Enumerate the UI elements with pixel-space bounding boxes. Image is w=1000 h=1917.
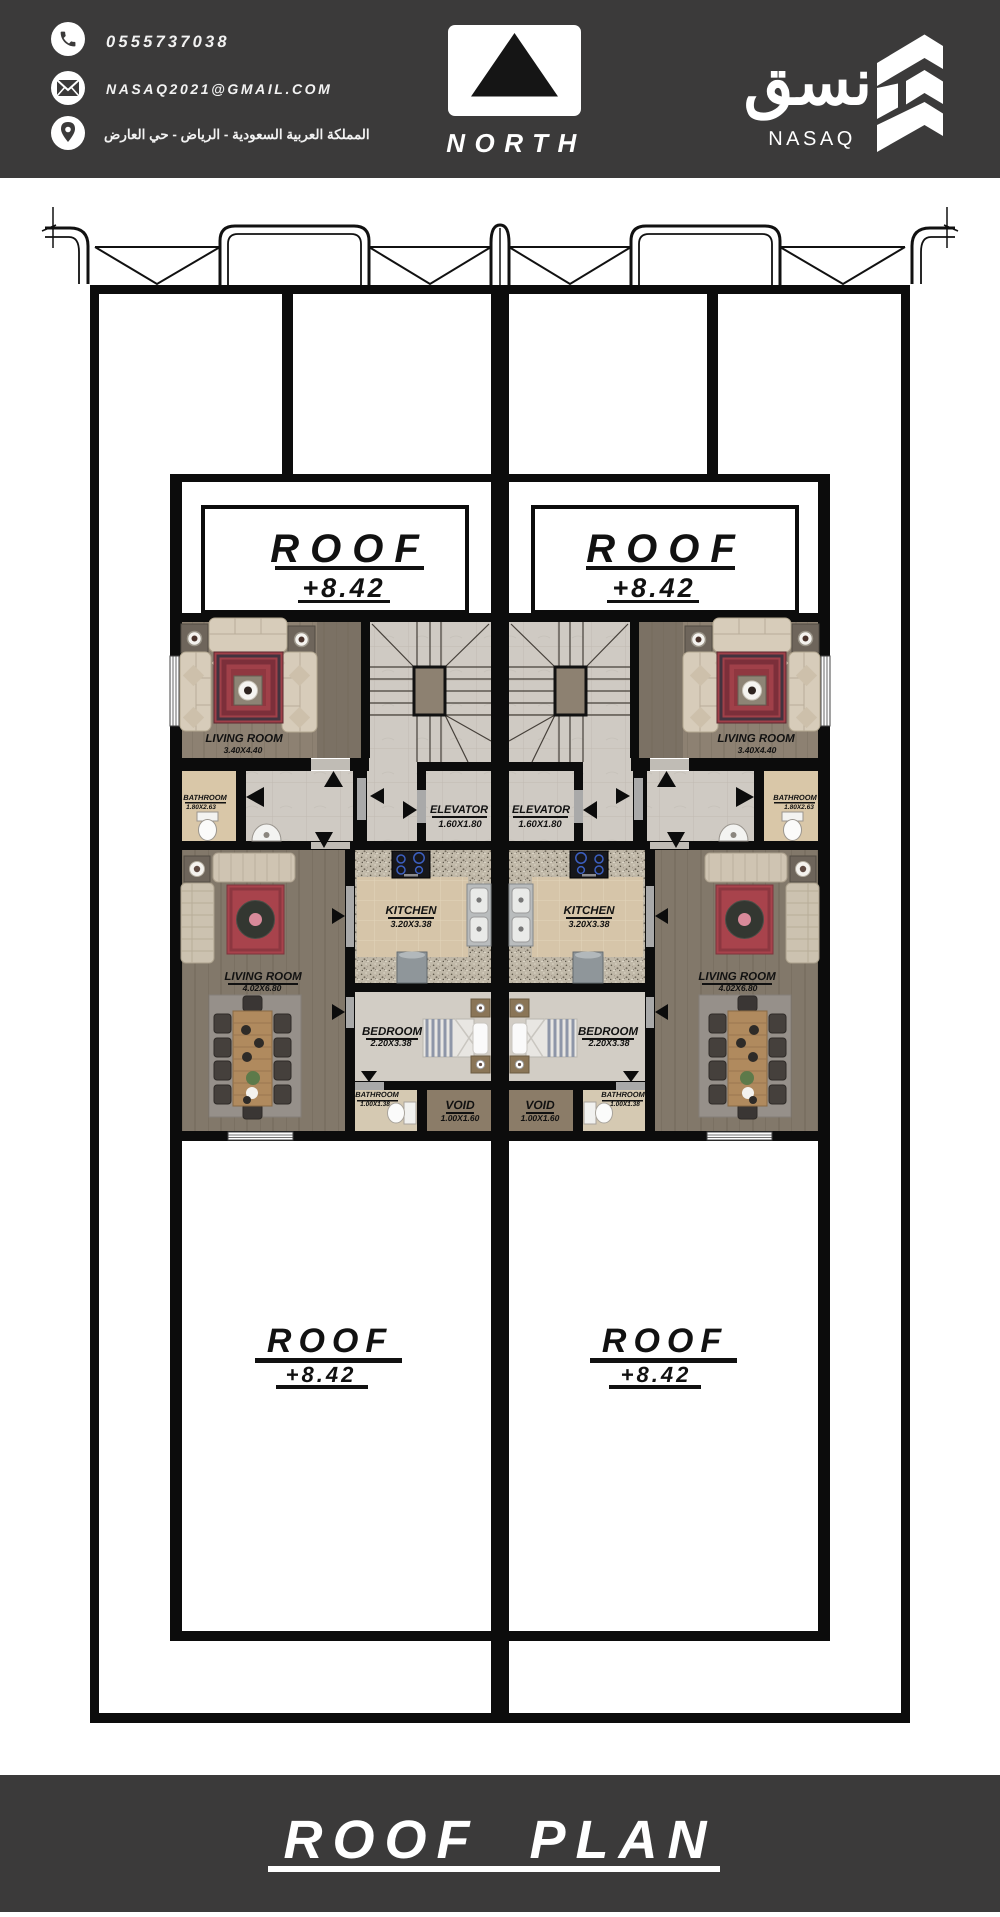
svg-text:نسق: نسق xyxy=(744,46,872,121)
svg-text:+8.42: +8.42 xyxy=(286,1362,357,1387)
svg-text:BATHROOM: BATHROOM xyxy=(355,1090,399,1099)
svg-text:LIVING ROOM: LIVING ROOM xyxy=(205,733,283,745)
svg-text:0555737038: 0555737038 xyxy=(106,33,230,51)
svg-text:KITCHEN: KITCHEN xyxy=(385,905,437,917)
svg-text:ELEVATOR: ELEVATOR xyxy=(512,804,570,816)
svg-text:1.00X1.38: 1.00X1.38 xyxy=(610,1101,640,1108)
svg-text:3.20X3.38: 3.20X3.38 xyxy=(390,919,431,929)
svg-text:1.80X2.63: 1.80X2.63 xyxy=(186,804,216,811)
svg-text:ROOF: ROOF xyxy=(602,1322,728,1360)
svg-text:NASAQ2021@GMAIL.COM: NASAQ2021@GMAIL.COM xyxy=(106,81,332,97)
svg-text:3.20X3.38: 3.20X3.38 xyxy=(568,919,609,929)
svg-text:NASAQ: NASAQ xyxy=(768,128,856,150)
svg-text:ELEVATOR: ELEVATOR xyxy=(430,804,488,816)
svg-text:BATHROOM: BATHROOM xyxy=(183,793,227,802)
svg-text:1.00X1.60: 1.00X1.60 xyxy=(521,1113,560,1123)
svg-text:BATHROOM: BATHROOM xyxy=(773,793,817,802)
svg-text:+8.42: +8.42 xyxy=(621,1362,692,1387)
svg-text:2.20X3.38: 2.20X3.38 xyxy=(587,1038,629,1048)
svg-text:KITCHEN: KITCHEN xyxy=(563,905,615,917)
svg-text:2.20X3.38: 2.20X3.38 xyxy=(369,1038,411,1048)
svg-text:ROOF: ROOF xyxy=(270,527,430,571)
svg-text:LIVING ROOM: LIVING ROOM xyxy=(717,733,795,745)
svg-text:BEDROOM: BEDROOM xyxy=(578,1026,638,1038)
svg-text:ROOF: ROOF xyxy=(586,527,746,571)
svg-text:4.02X6.80: 4.02X6.80 xyxy=(718,983,758,993)
svg-text:LIVING ROOM: LIVING ROOM xyxy=(224,971,302,983)
svg-text:VOID: VOID xyxy=(525,1098,555,1112)
svg-text:1.00X1.60: 1.00X1.60 xyxy=(441,1113,480,1123)
svg-text:المملكة العربية السعودية - الر: المملكة العربية السعودية - الرياض - حي ا… xyxy=(104,127,370,143)
svg-text:1.60X1.80: 1.60X1.80 xyxy=(518,819,562,830)
svg-text:LIVING ROOM: LIVING ROOM xyxy=(698,971,776,983)
svg-text:NORTH: NORTH xyxy=(446,128,585,158)
svg-text:BEDROOM: BEDROOM xyxy=(362,1026,422,1038)
svg-text:3.40X4.40: 3.40X4.40 xyxy=(224,745,263,755)
svg-text:VOID: VOID xyxy=(445,1098,475,1112)
svg-text:+8.42: +8.42 xyxy=(612,573,695,603)
svg-text:1.00X1.38: 1.00X1.38 xyxy=(360,1101,390,1108)
svg-text:3.40X4.40: 3.40X4.40 xyxy=(738,745,777,755)
svg-text:ROOF: ROOF xyxy=(267,1322,393,1360)
svg-text:1.80X2.63: 1.80X2.63 xyxy=(784,804,814,811)
svg-text:1.60X1.80: 1.60X1.80 xyxy=(438,819,482,830)
svg-text:ROOF PLAN: ROOF PLAN xyxy=(284,1810,717,1870)
svg-text:BATHROOM: BATHROOM xyxy=(601,1090,645,1099)
svg-text:+8.42: +8.42 xyxy=(302,573,385,603)
svg-text:4.02X6.80: 4.02X6.80 xyxy=(242,983,282,993)
